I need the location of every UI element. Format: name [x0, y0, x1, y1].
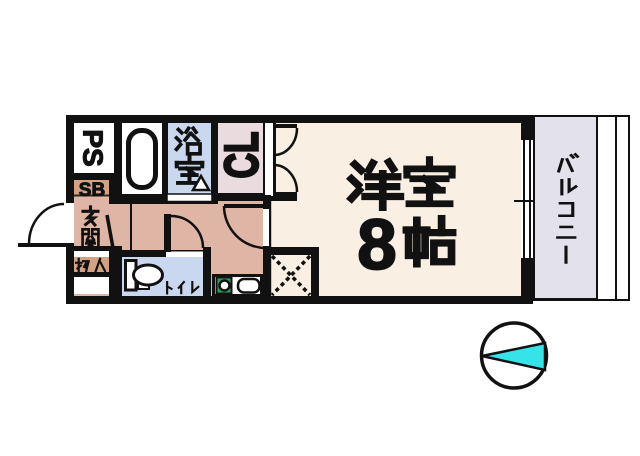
svg-text:SB: SB	[79, 180, 105, 201]
svg-text:8: 8	[357, 206, 397, 285]
svg-text:CL: CL	[214, 132, 267, 179]
svg-text:PS: PS	[78, 129, 109, 166]
